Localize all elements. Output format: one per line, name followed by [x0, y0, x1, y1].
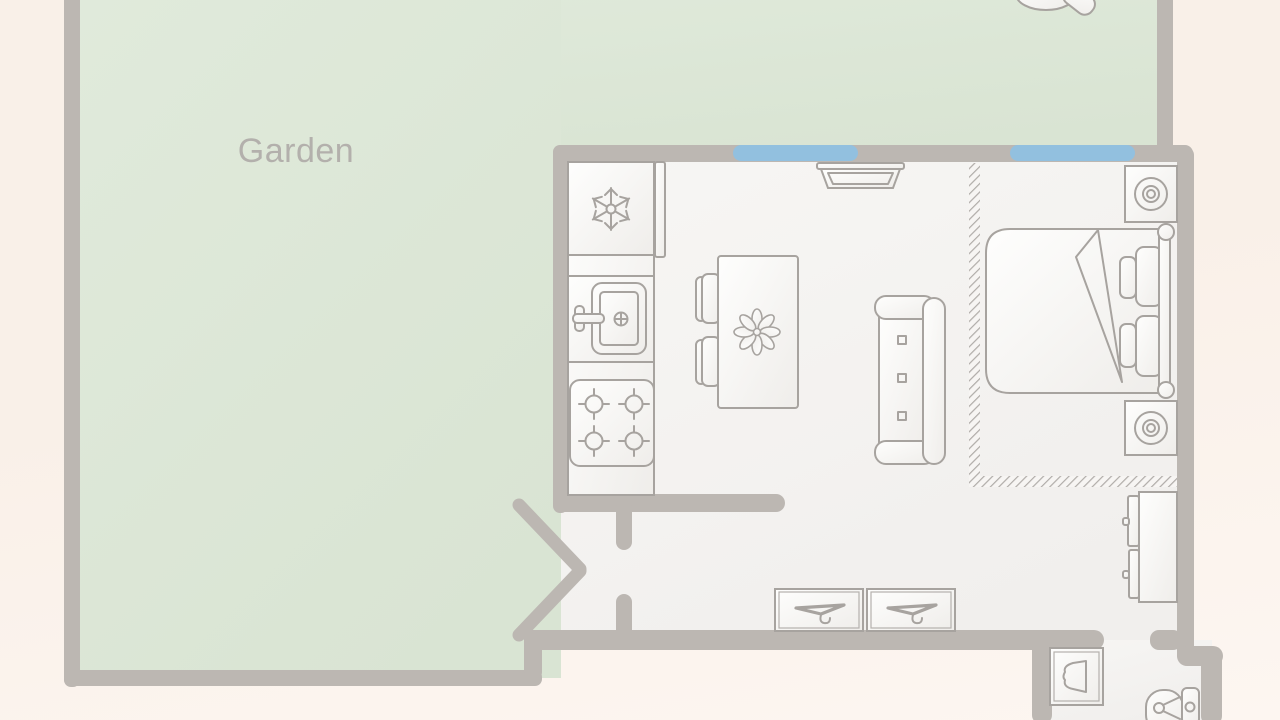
- plant-icon: [734, 309, 780, 355]
- wall-right-jog-vertical: [1201, 650, 1222, 720]
- wall-door-jamb-upper: [616, 498, 632, 550]
- pillow-small: [1120, 257, 1136, 298]
- garden-room-label: Garden: [238, 132, 354, 170]
- dresser-knob: [1123, 518, 1129, 525]
- wall-door-jamb-lower: [616, 594, 632, 638]
- dresser[interactable]: [1123, 492, 1177, 602]
- nightstand-lamp[interactable]: [1125, 166, 1177, 222]
- drain-icon: [615, 313, 628, 326]
- wardrobe-hanger-unit[interactable]: [867, 589, 955, 631]
- wall-hall-bottom: [524, 630, 1104, 650]
- headboard-knob: [1158, 224, 1174, 240]
- wall-garden-right: [1157, 0, 1173, 158]
- pillow-small: [1120, 324, 1136, 367]
- wall-tv[interactable]: [817, 163, 904, 188]
- sofa[interactable]: [875, 296, 945, 464]
- bedroom-window[interactable]: [1010, 145, 1135, 161]
- toilet-tank: [1182, 688, 1199, 720]
- toilet[interactable]: [1146, 688, 1199, 720]
- wall-kitchen-bottom: [553, 494, 785, 512]
- dresser-knob: [1123, 571, 1129, 578]
- sofa-seat: [879, 312, 927, 448]
- headboard-knob: [1158, 382, 1174, 398]
- floorplan-svg: Garden: [0, 0, 1280, 720]
- wall-garden-bottom: [64, 670, 542, 686]
- wardrobe-hanger-unit[interactable]: [775, 589, 863, 631]
- stove[interactable]: [570, 380, 654, 466]
- washbasin[interactable]: [1050, 648, 1103, 705]
- bar-stool[interactable]: [696, 337, 720, 386]
- wall-kitchen-left: [553, 145, 568, 513]
- wall-bath-jamb: [1150, 630, 1182, 650]
- headboard: [1159, 227, 1170, 395]
- wall-right: [1177, 147, 1194, 663]
- wall-garden-left: [64, 0, 80, 687]
- nightstand-lamp[interactable]: [1125, 401, 1177, 455]
- kitchen-island[interactable]: [718, 256, 798, 408]
- fridge-freezer[interactable]: [568, 162, 654, 255]
- double-bed[interactable]: [986, 224, 1174, 398]
- sofa-backrest: [923, 298, 945, 464]
- floorplan-canvas: Garden: [0, 0, 1280, 720]
- kitchen-window[interactable]: [733, 145, 858, 161]
- counter-end-panel: [655, 162, 665, 257]
- kitchen-sink[interactable]: [568, 276, 654, 362]
- dresser-drawer: [1129, 550, 1139, 598]
- bar-stool[interactable]: [696, 274, 720, 323]
